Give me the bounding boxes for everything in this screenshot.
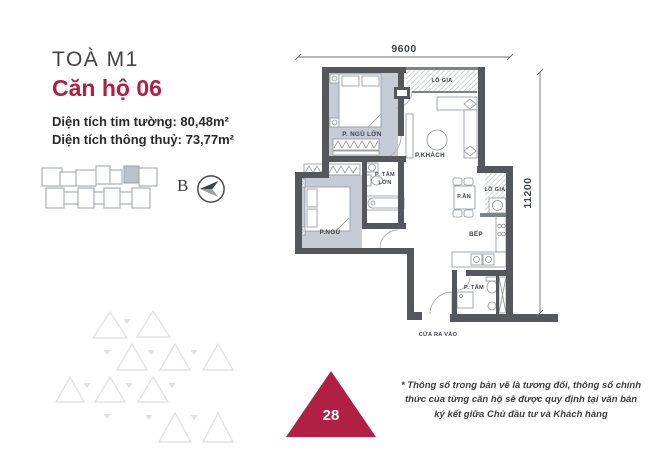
disclaimer-note: * Thông số trong bản vẽ là tương đối, th… xyxy=(399,379,643,422)
floor-plan: 9600 11200 P. NGỦ LỚN LÔ GIA P.KHÁCH P. … xyxy=(285,25,625,355)
building-title: TOÀ M1 xyxy=(52,48,234,72)
room-label-loggia-top: LÔ GIA xyxy=(431,76,452,84)
room-label-master-bedroom: P. NGỦ LỚN xyxy=(342,129,382,138)
balcony-door-block xyxy=(397,90,407,96)
unit-info: TOÀ M1 Căn hộ 06 Diện tích tim tường: 80… xyxy=(52,48,234,149)
room-label-bath-small: P. TẮM xyxy=(464,283,484,291)
north-label: B xyxy=(177,176,188,196)
area-net: Diện tích thông thuỷ: 73,77m² xyxy=(52,131,234,149)
badge-number: 28 xyxy=(286,407,376,424)
unit-title: Căn hộ 06 xyxy=(52,75,234,102)
room-label-bedroom2: P.NGỦ xyxy=(320,227,341,236)
triangle-pattern-watermark xyxy=(48,300,248,450)
room-label-kitchen: BẾP xyxy=(469,228,483,238)
compass-icon xyxy=(196,174,226,204)
dim-height-label: 11200 xyxy=(522,177,534,208)
page-number-badge: 28 xyxy=(286,371,376,437)
area-gross: Diện tích tim tường: 80,48m² xyxy=(52,113,234,131)
dim-width-label: 9600 xyxy=(391,43,416,55)
building-footprint-icon xyxy=(40,160,166,216)
entrance-label: CỬA RA VÀO xyxy=(419,331,458,338)
room-label-bath-large-2: LỚN xyxy=(378,178,391,186)
room-label-living: P.KHÁCH xyxy=(415,150,445,159)
room-label-bath-large-1: P. TẮM xyxy=(375,170,395,178)
badge-triangle-icon xyxy=(286,371,376,437)
brochure-page: TOÀ M1 Căn hộ 06 Diện tích tim tường: 80… xyxy=(0,0,650,460)
room-label-dining: P.ĂN xyxy=(457,193,471,200)
room-label-loggia-right: LÔ GIA xyxy=(484,185,505,193)
